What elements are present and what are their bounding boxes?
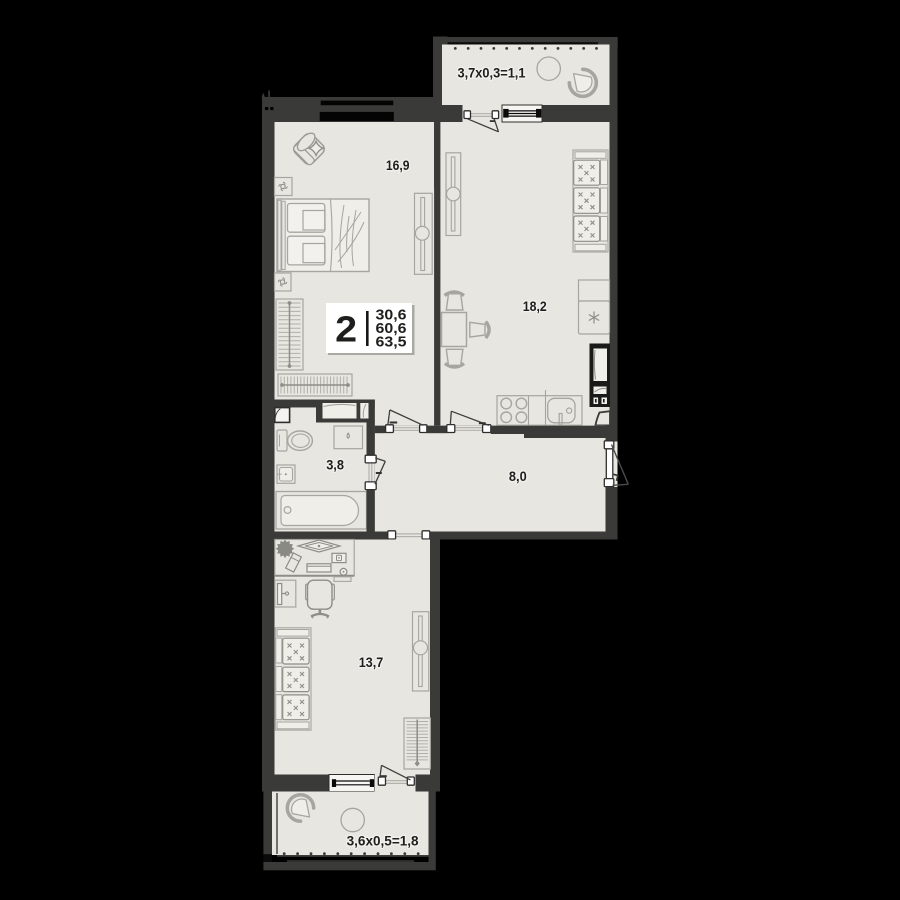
svg-text:16,9: 16,9: [386, 158, 410, 173]
svg-text:8,0: 8,0: [509, 469, 527, 484]
svg-text:3,6х0,5=1,8: 3,6х0,5=1,8: [347, 834, 419, 849]
svg-text:3,8: 3,8: [326, 458, 344, 473]
svg-text:2: 2: [335, 308, 357, 349]
svg-text:13,7: 13,7: [359, 655, 384, 670]
svg-text:63,5: 63,5: [376, 334, 407, 350]
svg-text:18,2: 18,2: [523, 299, 547, 314]
svg-text:3,7х0,3=1,1: 3,7х0,3=1,1: [458, 66, 526, 81]
